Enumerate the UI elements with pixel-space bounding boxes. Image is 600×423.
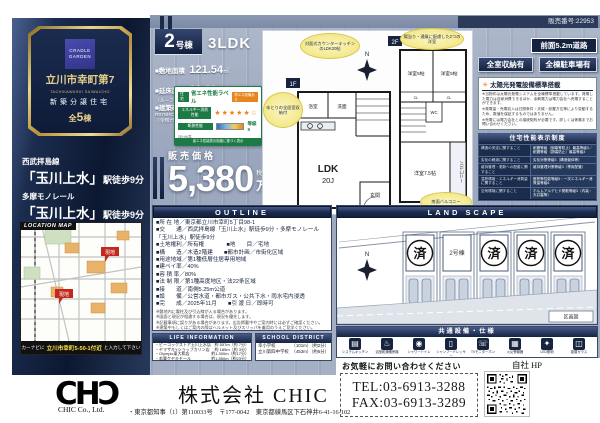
- svg-text:2F: 2F: [391, 40, 398, 46]
- decor-bar: [168, 16, 172, 29]
- company-name: 株式会社 CHIC: [178, 379, 329, 408]
- project-title-en: TACHIKAWASHI SAIWAICHO: [50, 90, 110, 94]
- fax-number: FAX:03-6913-3289: [352, 395, 466, 411]
- svg-text:浴室: 浴室: [308, 103, 318, 110]
- svg-text:洋室5帖: 洋室5帖: [440, 70, 457, 77]
- sale-number-strip: 販売番号:22953: [458, 16, 598, 28]
- energy-stars: ★★★★★☆: [214, 109, 258, 117]
- svg-text:2号棟: 2号棟: [449, 249, 464, 257]
- own-hp-label: 自社 HP: [512, 359, 542, 371]
- price-value: 5,380: [168, 162, 253, 196]
- svg-text:N: N: [365, 52, 369, 58]
- location-map: 現地 現地 LOCATION MAP カーナビに 立川市幸町5-50-1付近 と…: [20, 222, 142, 355]
- total-units: 全5棟: [69, 110, 92, 124]
- energy-performance-label: 住宅 省エネ性能ラベル 再エネ設備あり エネルギー消費性能 ★★★★★☆ 断熱性…: [174, 86, 262, 146]
- cradle-garden-logo: CRADLE GARDEN: [65, 39, 95, 69]
- license-line: ・東京都知事（1）第110033号 〒177-0042 東京都練馬区下石神井6-…: [128, 407, 350, 416]
- svg-text:洗面: 洗面: [337, 103, 347, 110]
- svg-text:現地: 現地: [105, 249, 115, 256]
- contact-cta: お気軽にお問い合わせください: [342, 361, 461, 372]
- svg-text:洋室7.5帖: 洋室7.5帖: [414, 170, 436, 177]
- school-district-box: SCHOOL DISTRICT 幸小学校（101m）（約2分） 立川第四中学校（…: [255, 333, 332, 361]
- led-light-icon: ✦: [541, 338, 553, 350]
- svg-text:済: 済: [561, 246, 575, 261]
- svg-text:20J: 20J: [322, 176, 334, 185]
- performance-panel: 住宅性能表示制度 構造の安定に関すること耐震等級（倒壊等防止）最高等級3／耐震等…: [478, 133, 597, 201]
- site-legend: 区画図: [549, 311, 593, 322]
- station-2: 「玉川上水」駅徒歩9分: [22, 202, 148, 222]
- compass-icon: N: [357, 52, 377, 81]
- svg-text:CL: CL: [414, 96, 419, 100]
- storage-badge: 全室収納有: [478, 57, 533, 72]
- navi-address: 立川市幸町5-50-1付近: [47, 344, 102, 352]
- station-access: 西武拝島線 「玉川上水」駅徒歩9分 多摩モノレール 「玉川上水」駅徒歩9分: [22, 152, 148, 222]
- svg-text:WC: WC: [431, 110, 438, 115]
- solar-panel-box: ☀ 太陽光発電設備標準搭載 ※当物件は太陽光発電システムを全棟標準搭載しています…: [478, 77, 597, 130]
- callout-bubble: 対面式カウンターキッチンのLDK20帖: [300, 33, 360, 59]
- decor-bar: [160, 16, 164, 29]
- tel-fax-box: TEL:03-6913-3288 FAX:03-6913-3289: [340, 373, 478, 417]
- station-1: 「玉川上水」駅徒歩9分: [22, 167, 148, 187]
- project-title: 立川市幸町第7: [46, 72, 115, 87]
- svg-text:済: 済: [413, 246, 427, 261]
- rail-line-2: 多摩モノレール: [22, 191, 148, 202]
- dresser-icon: ▯: [445, 338, 457, 350]
- bath-dryer-icon: ♨: [381, 338, 393, 350]
- project-category: 新築分譲住宅: [50, 97, 110, 107]
- kitchen-icon: ▤: [349, 338, 361, 350]
- car-navi-note: カーナビに 立川市幸町5-50-1付近 と入力して下さい: [21, 341, 141, 354]
- svg-text:済: 済: [524, 246, 538, 261]
- outline-panel: OUTLINE ■所 在 地／東京都立川市幸町5丁目98-1 ■交 通／西武拝島…: [152, 205, 332, 331]
- shower-toilet-icon: ◉: [413, 338, 425, 350]
- map-drawing: 現地 現地: [21, 223, 141, 341]
- map-title: LOCATION MAP: [20, 222, 76, 230]
- tel-number: TEL:03-6913-3288: [353, 379, 466, 395]
- svg-text:済: 済: [487, 246, 501, 261]
- landscape-panel: LAND SCAPE 済 2号: [336, 205, 598, 325]
- svg-text:N: N: [365, 252, 369, 258]
- rail-line-1: 西武拝島線: [22, 156, 148, 167]
- svg-text:1F: 1F: [289, 82, 296, 88]
- site-plan-drawing: 済 2号棟 済 済 済 N 区画図: [337, 218, 597, 324]
- qr-code: [484, 371, 530, 417]
- callout-bubble: 陽当り・通風に配慮した2つの洋室: [400, 28, 464, 50]
- front-road-badge: 前面5.2m道路: [531, 38, 597, 53]
- insulation-scale-bar: [216, 123, 245, 130]
- svg-text:LDK: LDK: [318, 164, 339, 175]
- site-compass-icon: N: [357, 252, 377, 281]
- svg-text:洋室5帖: 洋室5帖: [407, 70, 424, 77]
- facilities-panel: 共通設備・仕様 ▤システムキッチン ♨浴室乾燥暖房機 ◉シャワートイレ ▯シャン…: [336, 326, 598, 358]
- fire-alarm-icon: ▦: [509, 338, 521, 350]
- unit-number-badge: 2 号棟: [155, 29, 202, 55]
- chic-logo-sub: CHIC Co., Ltd.: [58, 405, 104, 414]
- sun-icon: ☀: [482, 82, 488, 89]
- svg-text:CL: CL: [447, 96, 452, 100]
- callout-bubble: ゆとりの全居室収納付: [263, 92, 303, 128]
- outline-title: OUTLINE: [153, 206, 331, 218]
- svg-text:区画図: 区画図: [563, 315, 578, 321]
- double-glass-icon: ◫: [573, 338, 585, 350]
- project-emblem: CRADLE GARDEN 立川市幸町第7 TACHIKAWASHI SAIWA…: [28, 26, 132, 136]
- svg-text:バルコニー: バルコニー: [459, 161, 464, 183]
- life-information-box: LIFE INFORMATION ・ピーコックストア玉川上水店約 557m（約 …: [152, 333, 252, 361]
- parking-badge: 全棟駐車場有: [539, 57, 597, 72]
- intercom-icon: ☏: [477, 338, 489, 350]
- svg-text:現地: 現地: [59, 291, 69, 298]
- layout-type: 3LDK: [208, 35, 251, 52]
- landscape-title: LAND SCAPE: [337, 206, 597, 218]
- sidebar: CRADLE GARDEN 立川市幸町第7 TACHIKAWASHI SAIWA…: [12, 18, 150, 375]
- svg-text:玄関: 玄関: [370, 192, 380, 199]
